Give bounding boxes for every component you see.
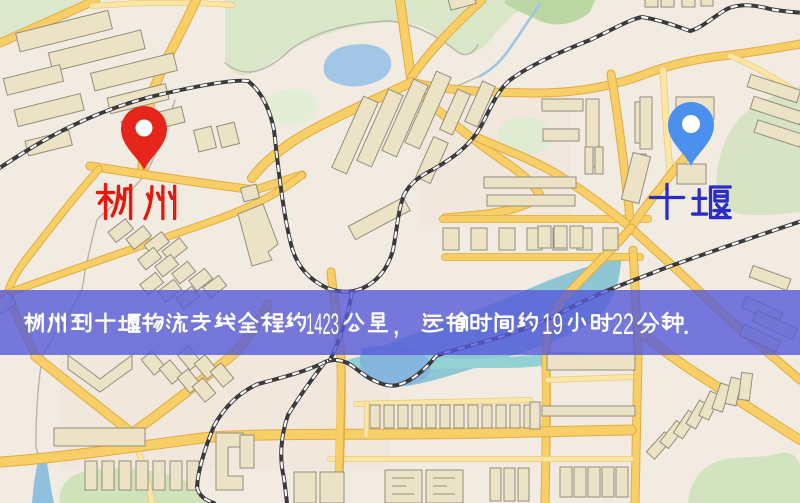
svg-text:19: 19 <box>542 308 563 341</box>
svg-text:.: . <box>682 308 690 341</box>
svg-text:22: 22 <box>612 308 634 341</box>
svg-text:1423: 1423 <box>306 308 339 341</box>
svg-text:,: , <box>392 308 400 341</box>
